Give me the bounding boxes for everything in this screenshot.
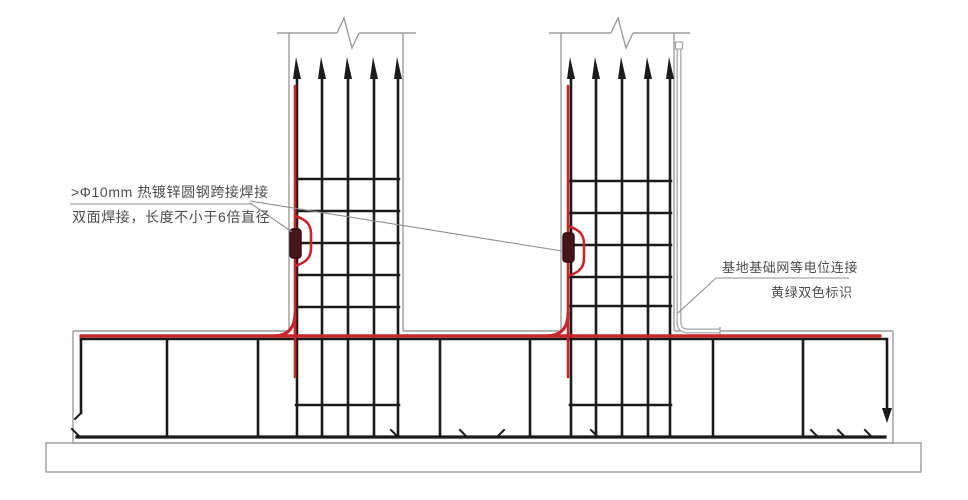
base-pad: [46, 443, 921, 472]
column-left-rebar: [293, 57, 402, 437]
diagram-canvas: [0, 0, 968, 500]
column-outlines: [277, 18, 690, 331]
ground-conductor-red: [81, 86, 880, 377]
weld-note-line1: >Φ10mm 热镀锌圆钢跨接焊接: [71, 182, 269, 202]
slab-rebar: [72, 339, 892, 437]
bond-note-line2: 黄绿双色标识: [771, 282, 853, 301]
foundation-slab-outline: [73, 331, 893, 443]
bond-note-line1: 基地基础网等电位连接: [722, 257, 858, 276]
weld-clamp-right: [563, 233, 574, 262]
weld-clamp-left: [290, 229, 301, 258]
bonding-conductor: [676, 42, 721, 335]
construction-detail-diagram: >Φ10mm 热镀锌圆钢跨接焊接 双面焊接，长度不小于6倍直径 基地基础网等电位…: [0, 0, 968, 500]
weld-note-line2: 双面焊接，长度不小于6倍直径: [72, 207, 270, 227]
